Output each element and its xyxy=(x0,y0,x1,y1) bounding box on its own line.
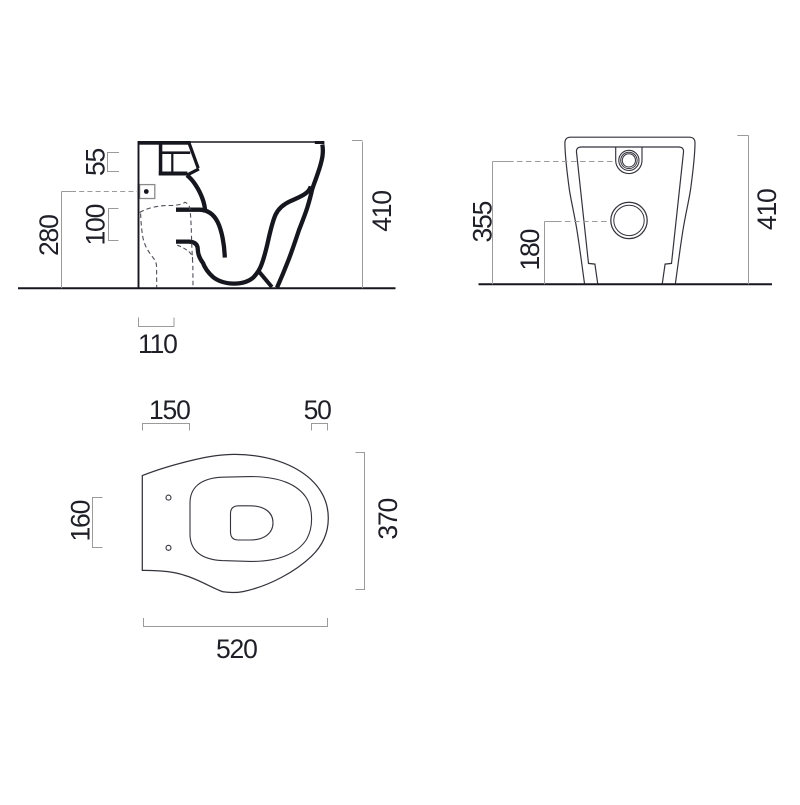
svg-text:410: 410 xyxy=(752,189,782,230)
svg-text:150: 150 xyxy=(149,395,190,425)
svg-text:55: 55 xyxy=(81,148,111,176)
svg-text:355: 355 xyxy=(467,201,497,242)
svg-text:50: 50 xyxy=(304,395,332,425)
svg-text:180: 180 xyxy=(515,229,545,270)
svg-text:520: 520 xyxy=(216,634,257,664)
svg-text:410: 410 xyxy=(367,191,397,232)
svg-text:280: 280 xyxy=(34,215,64,256)
svg-text:160: 160 xyxy=(66,500,96,541)
svg-text:100: 100 xyxy=(80,204,110,245)
svg-text:370: 370 xyxy=(373,499,403,540)
svg-text:110: 110 xyxy=(138,329,177,359)
